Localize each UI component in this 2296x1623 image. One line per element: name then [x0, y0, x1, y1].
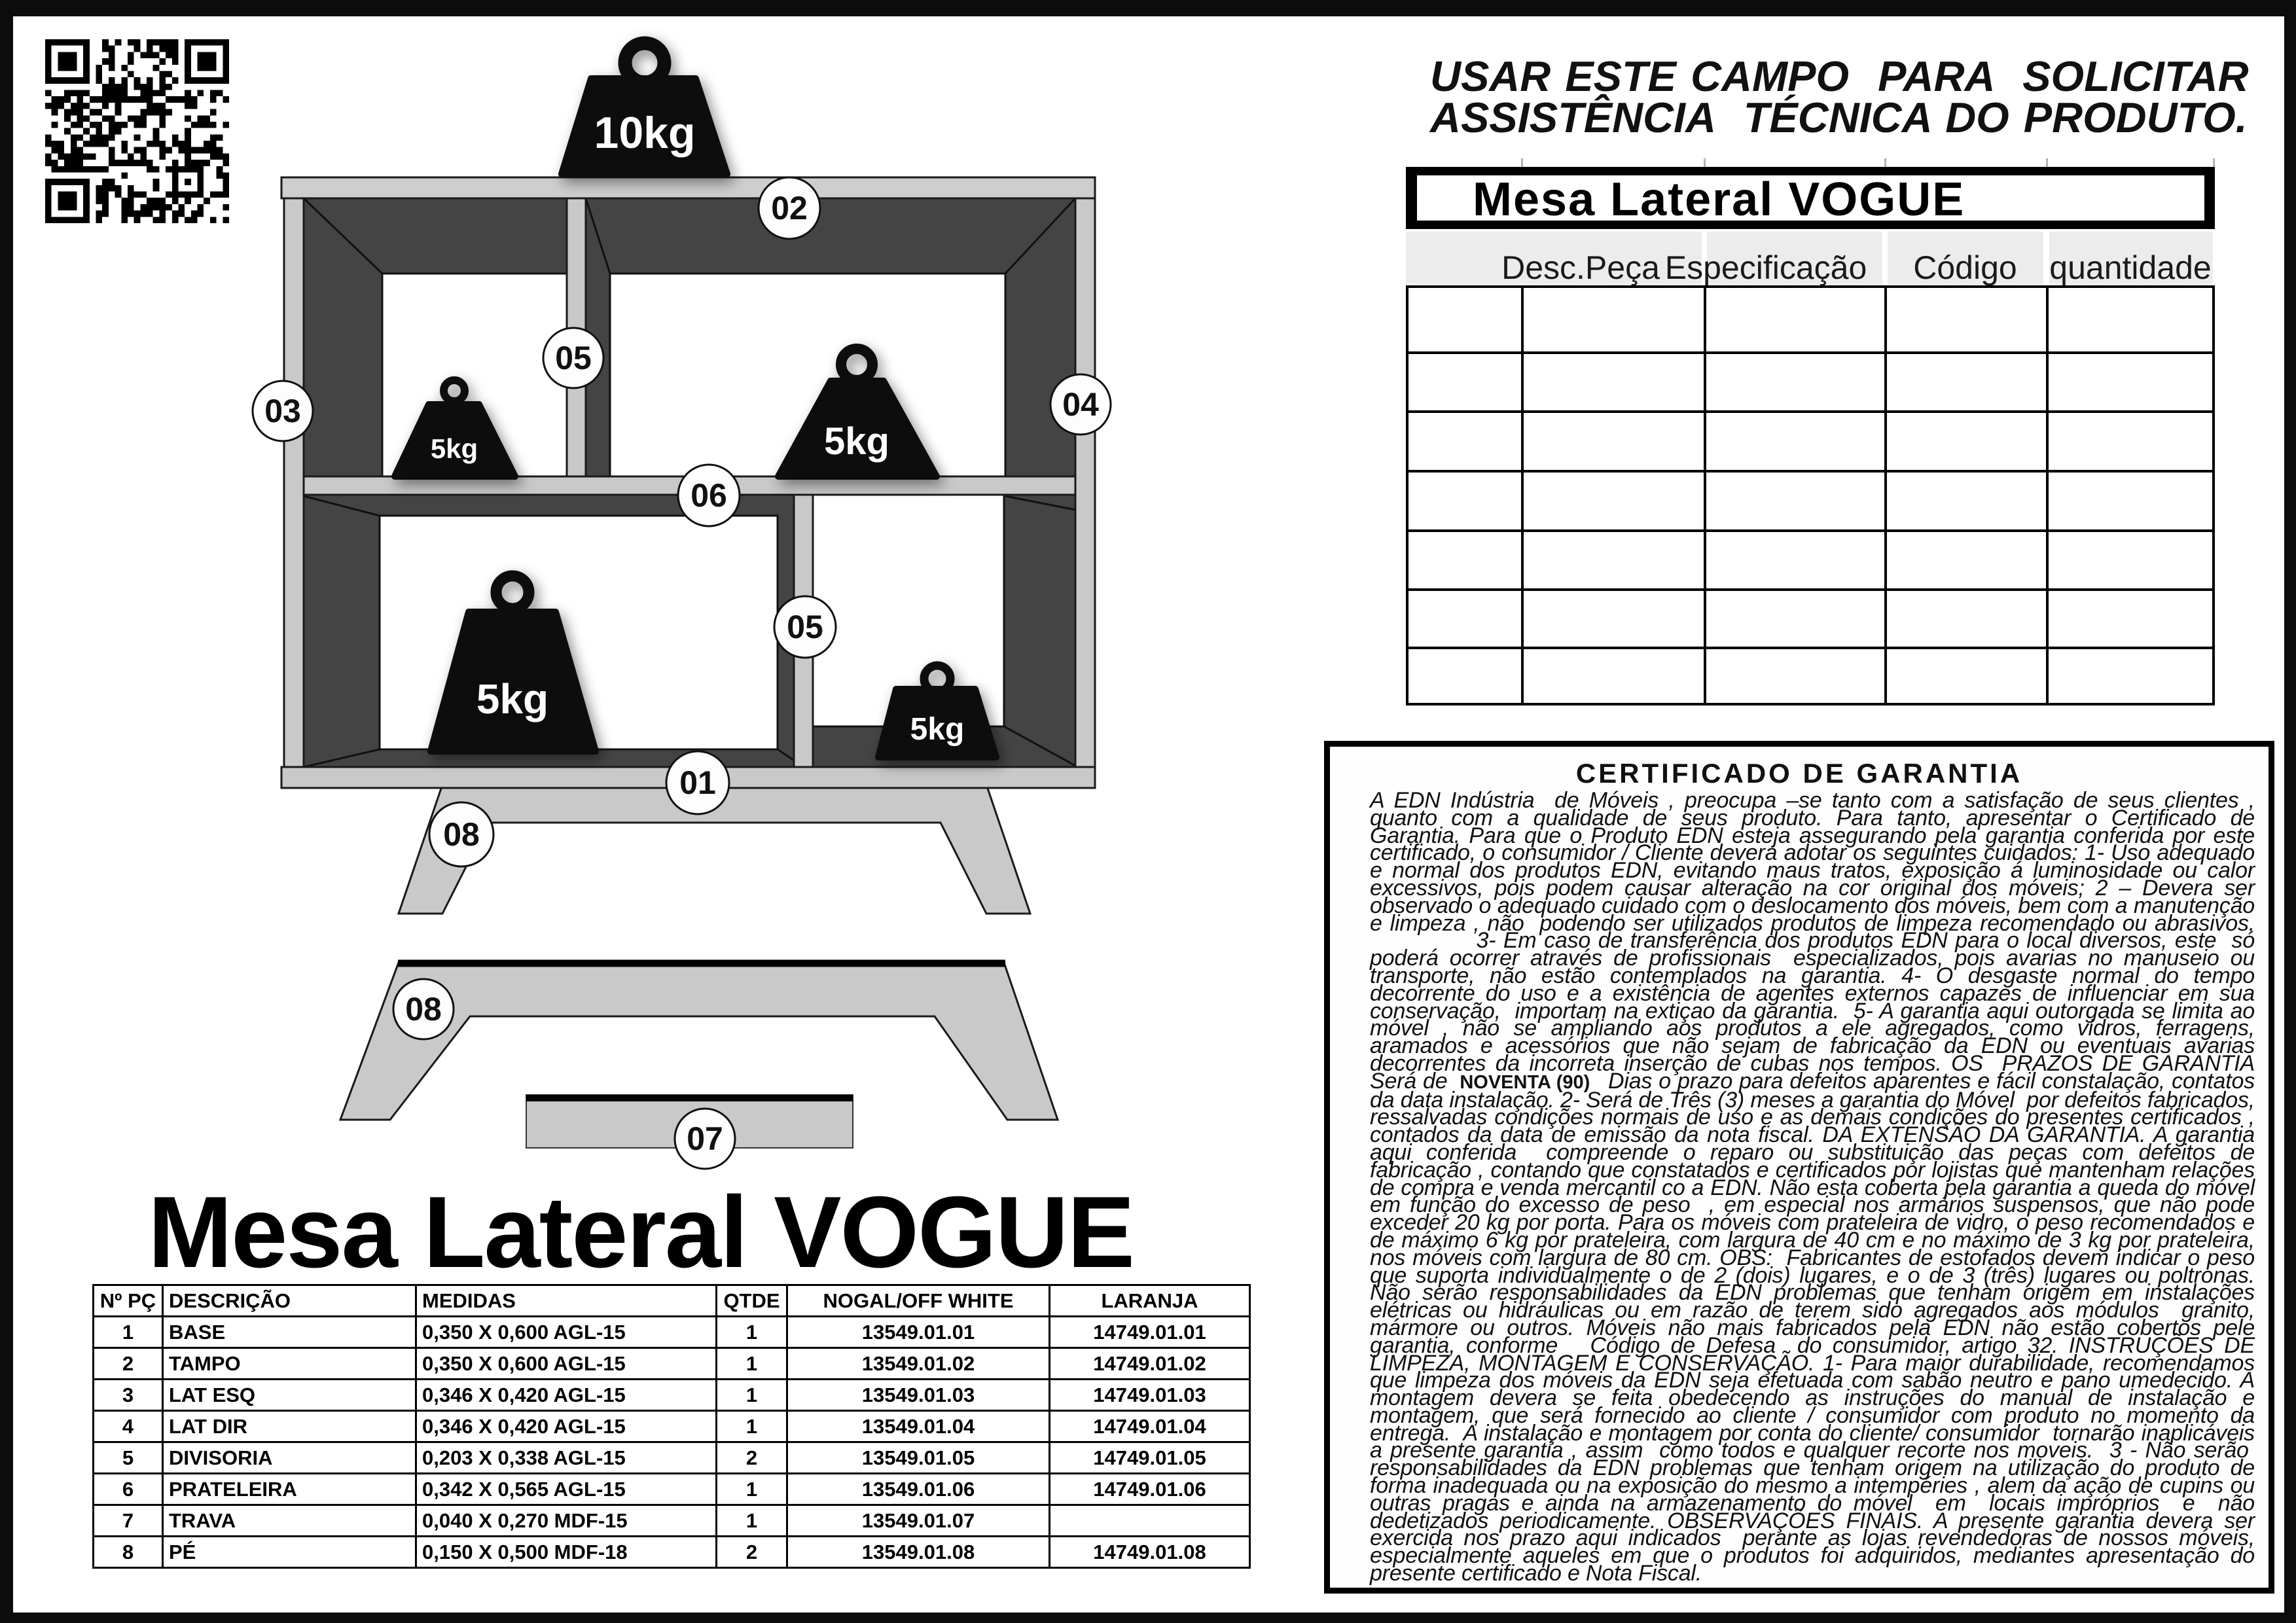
svg-text:06: 06 — [691, 477, 727, 514]
svg-text:05: 05 — [555, 340, 592, 376]
svg-text:08: 08 — [405, 991, 442, 1027]
svg-text:01: 01 — [679, 764, 716, 801]
svg-text:5kg: 5kg — [476, 675, 548, 722]
svg-text:10kg: 10kg — [594, 108, 696, 158]
svg-text:5kg: 5kg — [910, 712, 965, 747]
svg-text:04: 04 — [1062, 386, 1099, 423]
svg-text:07: 07 — [687, 1120, 723, 1157]
svg-text:08: 08 — [443, 816, 480, 853]
svg-text:02: 02 — [771, 190, 808, 226]
svg-text:03: 03 — [264, 393, 301, 429]
svg-text:5kg: 5kg — [824, 420, 889, 463]
svg-text:05: 05 — [787, 609, 823, 645]
svg-text:5kg: 5kg — [431, 433, 478, 464]
